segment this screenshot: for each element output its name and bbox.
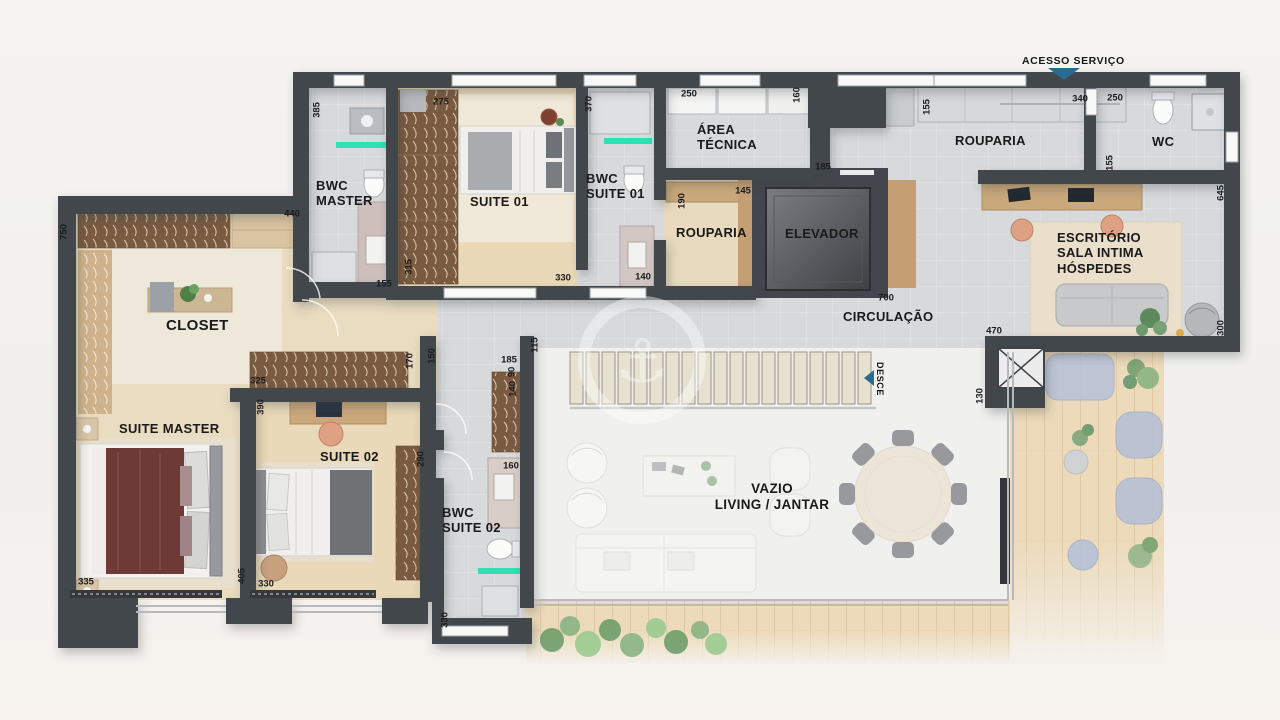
closet-wardrobe-bottom (250, 352, 408, 388)
elevator-side-panel (888, 180, 916, 288)
terrace-chair (1116, 478, 1162, 524)
room-label-circulacao: CIRCULAÇÃO (843, 309, 933, 324)
dimension-label: 145 (735, 186, 751, 196)
suite-01-decor-tray (541, 109, 557, 125)
dimension-label: 700 (878, 293, 894, 303)
dimension-label: 170 (405, 353, 415, 369)
dimension-label: 160 (503, 461, 519, 471)
escritorio-desk (982, 184, 1142, 210)
dimension-label: 130 (975, 388, 985, 404)
dimension-label: 470 (986, 326, 1002, 336)
room-label-suite-master: SUITE MASTER (119, 421, 219, 436)
dimension-label: 290 (416, 451, 426, 467)
dimension-label: 250 (681, 89, 697, 99)
dimension-label: 385 (312, 102, 322, 118)
stairs-desce-label: DESCE (875, 362, 884, 396)
dimension-label: 115 (530, 337, 540, 352)
floor-plan: ⚓ BWC MASTER SUITE 01 BWC SUITE 01 ÁREA … (0, 0, 1280, 720)
terrace-sofa (1046, 354, 1114, 400)
dimension-label: 140 (635, 272, 651, 282)
dimension-label: 90 (507, 367, 517, 378)
dimension-label: 190 (677, 193, 687, 209)
glass-shelf-teal (604, 138, 652, 144)
armchair (567, 443, 607, 483)
room-label-suite-01: SUITE 01 (470, 194, 529, 209)
dimension-label: 330 (555, 273, 571, 283)
shaft-box (998, 348, 1044, 388)
glass-shelf-teal (478, 568, 522, 574)
suite-01-wardrobe (396, 90, 458, 284)
room-label-wc: WC (1152, 134, 1174, 149)
dimension-label: 300 (1216, 320, 1226, 336)
terrace-chair-round (1068, 540, 1098, 570)
dimension-label: 150 (427, 348, 437, 364)
dimension-label: 330 (440, 612, 450, 628)
dimension-label: 185 (501, 355, 517, 365)
glass-shelf-teal (336, 142, 386, 148)
dimension-label: 155 (922, 99, 932, 115)
room-label-bwc-master: BWC MASTER (316, 178, 373, 209)
closet-island-box (150, 282, 174, 312)
suite-master-bed (76, 418, 222, 602)
terrace-chair (1116, 412, 1162, 458)
office-chair (1011, 219, 1033, 241)
room-label-rouparia-left: ROUPARIA (676, 225, 747, 240)
room-label-bwc-suite-01: BWC SUITE 01 (586, 171, 645, 202)
dimension-label: 340 (1072, 94, 1088, 104)
dining-table (855, 446, 951, 542)
dimension-label: 645 (1216, 185, 1226, 201)
terrace-side-table (1064, 450, 1088, 474)
shower-tray (590, 92, 650, 134)
dimension-label: 335 (78, 577, 94, 587)
room-label-area-tecnica: ÁREA TÉCNICA (697, 122, 757, 153)
room-label-elevador: ELEVADOR (785, 226, 859, 241)
suite-02-pouf (261, 555, 287, 581)
service-access-label: ACESSO SERVIÇO (1022, 56, 1125, 67)
dimension-label: 440 (284, 209, 300, 219)
suite-02-laptop (316, 402, 342, 417)
dimension-label: 370 (584, 96, 594, 112)
dimension-label: 155 (376, 279, 392, 289)
dimension-label: 750 (59, 224, 69, 240)
dimension-label: 155 (1105, 155, 1115, 171)
shower-tray (482, 586, 518, 616)
closet-wardrobe-top (78, 212, 230, 248)
room-label-vazio-living: VAZIO LIVING / JANTAR (715, 481, 830, 513)
suite-01-nightstand (400, 90, 426, 112)
dimension-label: 325 (250, 376, 266, 386)
room-label-escritorio: ESCRITÓRIO SALA INTIMA HÓSPEDES (1057, 230, 1144, 276)
living-sofa (576, 534, 756, 592)
floor-lamp (1176, 329, 1184, 337)
room-label-suite-02: SUITE 02 (320, 449, 379, 464)
dimension-label: 250 (1107, 93, 1123, 103)
dimension-label: 185 (815, 162, 831, 172)
suite-02-chair (319, 422, 343, 446)
dimension-label: 390 (256, 399, 266, 415)
room-label-rouparia-right: ROUPARIA (955, 133, 1026, 148)
dimension-label: 275 (433, 97, 449, 107)
dimension-label: 315 (404, 259, 414, 275)
dimension-label: 330 (258, 579, 274, 589)
closet-wardrobe-left (78, 250, 112, 414)
floor-plan-svg: ⚓ (0, 0, 1280, 720)
svg-text:⚓: ⚓ (615, 327, 669, 397)
armchair (567, 488, 607, 528)
dimension-label: 160 (792, 87, 802, 103)
room-label-bwc-suite-02: BWC SUITE 02 (442, 505, 501, 536)
room-label-closet: CLOSET (166, 317, 229, 335)
dimension-label: 140 (508, 381, 518, 397)
dimension-label: 405 (237, 568, 247, 584)
